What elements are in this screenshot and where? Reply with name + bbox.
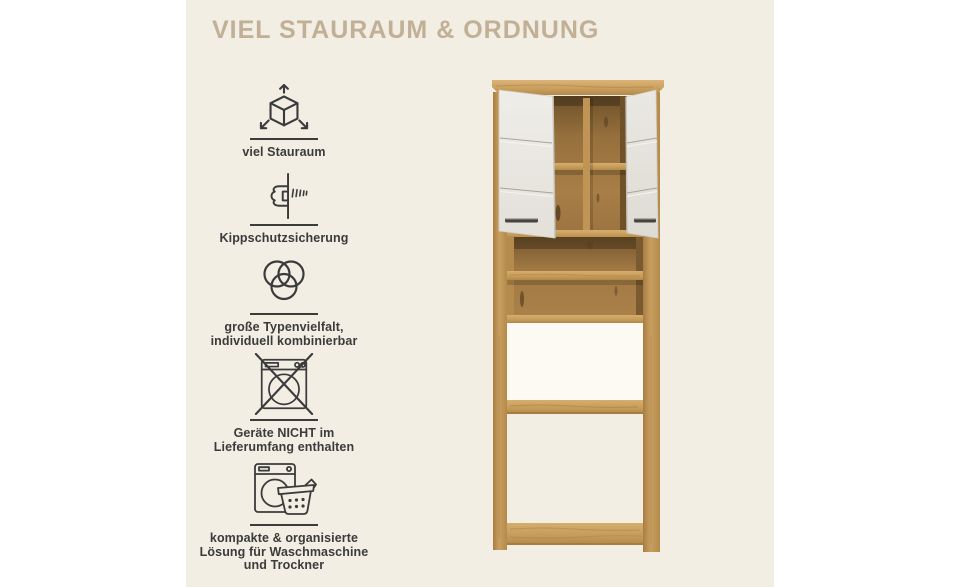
cabinet-right-door — [626, 90, 658, 238]
product-image — [186, 0, 774, 587]
infographic-panel: VIEL STAURAUM & ORDNUNG viel Stauraum — [186, 0, 774, 587]
cabinet-left-door — [499, 90, 555, 238]
